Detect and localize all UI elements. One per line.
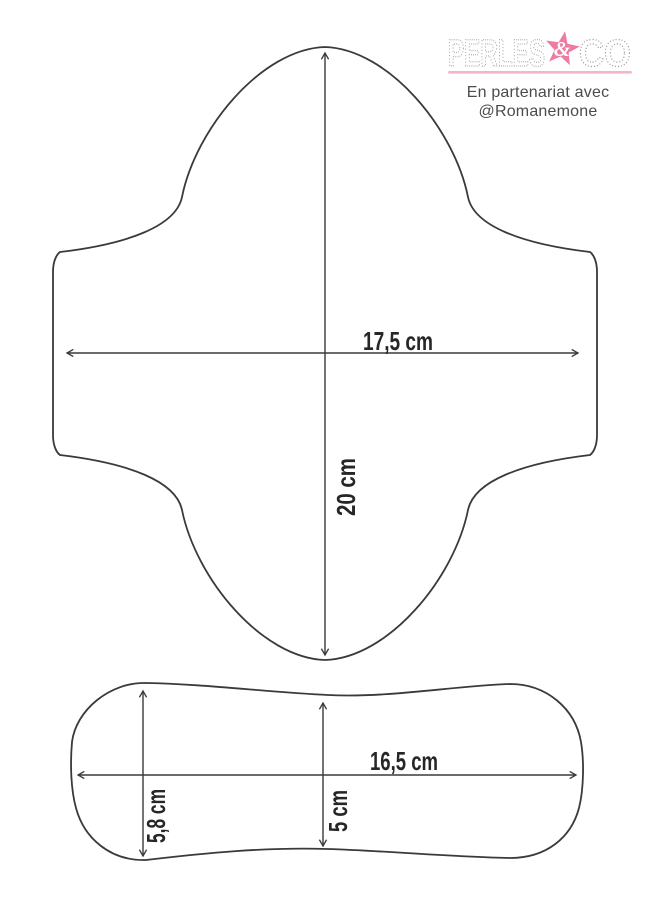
pattern-diagram: 17,5 cm 20 cm 16,5 cm 5,8 cm 5 cm [0,0,650,919]
insert-left-height-label: 5,8 cm [141,789,171,843]
pad-width-label: 17,5 cm [363,326,433,356]
perles-co-logo: PERLES & CO [440,28,645,78]
logo-word-perles: PERLES [448,33,545,75]
partnership-line1: En partenariat avec [438,83,638,102]
partnership-line2: @Romanemone [438,102,638,121]
insert-width-label: 16,5 cm [370,746,438,776]
pad-height-label: 20 cm [331,458,361,516]
insert-center-height-label: 5 cm [323,790,353,832]
partnership-credit: En partenariat avec @Romanemone [438,83,638,121]
logo-word-co: CO [579,33,631,75]
logo-ampersand: & [554,37,571,61]
pattern-sheet: 17,5 cm 20 cm 16,5 cm 5,8 cm 5 cm PERLES… [0,0,650,919]
